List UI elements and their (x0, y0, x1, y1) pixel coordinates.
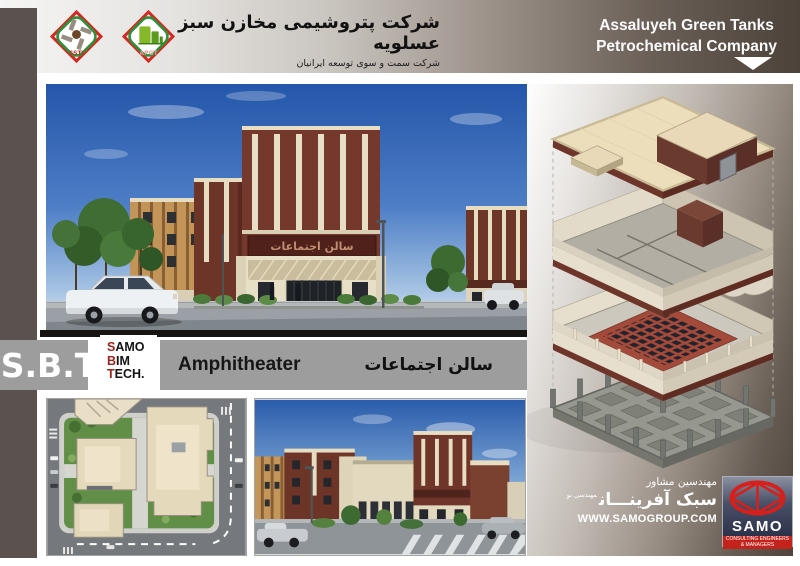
project-name-farsi: سالن اجتماعات (364, 355, 493, 375)
samo-logo-subtitle: CONSULTING ENGINEERS & MANAGERS (723, 536, 792, 549)
company-title-farsi-block: شرکت پتروشیمی مخازن سبز عسلویه شرکت سمت … (150, 12, 440, 69)
bim-line: BIM (107, 355, 157, 369)
tech-line: TECH. (107, 368, 157, 382)
company-title-english: Assaluyeh Green Tanks Petrochemical Comp… (596, 15, 777, 58)
samo-line: SAMO (107, 341, 157, 355)
samo-bim-tech-logo: SAMO BIM TECH. (100, 335, 157, 392)
consultant-name-text: سبک آفرینـــان (599, 490, 717, 510)
main-rendering-image: سالن اجتماعات (46, 84, 527, 330)
main-building-roof (156, 425, 199, 490)
samo-logo: SAMO CONSULTING ENGINEERS & MANAGERS (722, 476, 793, 547)
samo-logo-text: SAMO (723, 518, 792, 535)
secondary-rendering-image (255, 399, 525, 555)
company-subtitle-farsi: شرکت سمت و سوی توسعه ایرانیان (150, 58, 440, 69)
consultant-website: WWW.SAMOGROUP.COM (567, 513, 717, 525)
presentation-board: SSTI APGT شرکت پتروشیمی مخازن سبز عسلویه… (0, 0, 800, 566)
roof-layer (553, 97, 773, 199)
consultant-name-note: مهندسی نو (567, 491, 597, 499)
second-floor-layer (553, 180, 773, 317)
exploded-view-panel: مهندسین مشاور سبک آفرینـــانمهندسی نو WW… (527, 84, 793, 556)
consultant-block: مهندسین مشاور سبک آفرینـــانمهندسی نو WW… (567, 476, 717, 525)
site-plan-image (46, 398, 247, 556)
samo-globe-icon (723, 477, 792, 517)
consultant-role: مهندسین مشاور (567, 476, 717, 488)
header-band: SSTI APGT شرکت پتروشیمی مخازن سبز عسلویه… (0, 0, 800, 73)
project-title-bar: Amphitheater سالن اجتماعات (160, 340, 527, 390)
company-title-english-line2: Petrochemical Company (596, 36, 777, 57)
site-plan (47, 399, 246, 555)
left-side-strip (0, 8, 37, 558)
sbt-label-bar: S.B.T (0, 340, 88, 390)
ssti-label: SSTI (69, 50, 84, 57)
ssti-logo-icon: SSTI (49, 9, 104, 64)
consultant-name: سبک آفرینـــانمهندسی نو (567, 490, 717, 510)
project-name-english: Amphitheater (178, 354, 300, 376)
company-title-english-line1: Assaluyeh Green Tanks (596, 15, 777, 36)
sbt-text: S.B.T (1, 346, 98, 385)
main-rendering: سالن اجتماعات (46, 84, 527, 330)
building-sign-text: سالن اجتماعات (270, 240, 353, 253)
arrow-down-icon (734, 57, 772, 70)
company-title-farsi: شرکت پتروشیمی مخازن سبز عسلویه (150, 12, 440, 54)
exploded-axonometric-image (527, 86, 793, 474)
secondary-rendering (254, 398, 526, 556)
